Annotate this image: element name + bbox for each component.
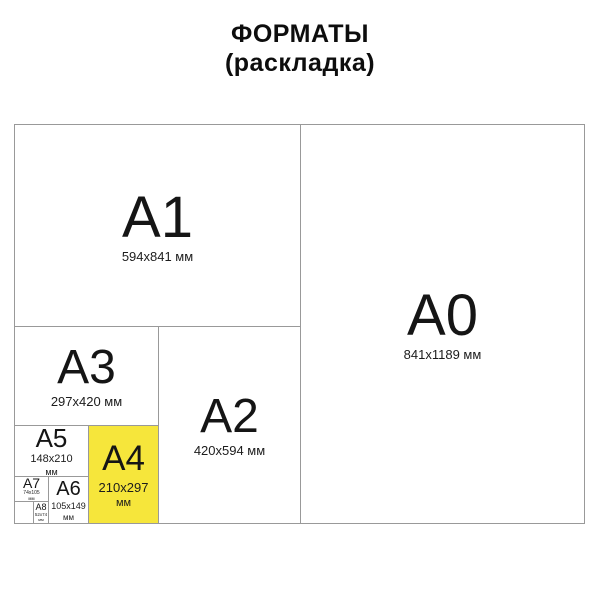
format-a8-name: A8	[35, 503, 46, 512]
format-a4: A4 210x297 мм	[88, 426, 158, 523]
format-a1: A1 594x841 мм	[15, 125, 300, 327]
format-a5: A5 148x210 мм	[15, 426, 88, 477]
formats-sheet: A0 841x1189 мм A1 594x841 мм A2 420x594 …	[14, 124, 585, 524]
format-a6: A6 105x149 мм	[48, 477, 88, 523]
format-a2: A2 420x594 мм	[158, 327, 300, 523]
format-a1-name: A1	[122, 189, 193, 247]
format-a2-size: 420x594 мм	[194, 444, 265, 457]
format-a5-name: A5	[36, 425, 68, 451]
format-a2-name: A2	[200, 393, 259, 441]
paper-formats-diagram: ФОРМАТЫ (раскладка) A0 841x1189 мм A1 59…	[0, 0, 600, 600]
format-a0: A0 841x1189 мм	[300, 125, 584, 523]
format-a6-name: A6	[56, 479, 80, 499]
format-a6-size: 105x149	[51, 502, 86, 511]
page-title: ФОРМАТЫ (раскладка)	[0, 20, 600, 78]
format-a4-name: A4	[102, 441, 145, 476]
format-a1-size: 594x841 мм	[122, 250, 193, 263]
title-line2: (раскладка)	[0, 49, 600, 78]
format-a8: A8 52x74 мм	[33, 502, 48, 523]
format-a0-name: A0	[407, 287, 478, 345]
format-a4-size: 210x297	[99, 481, 149, 494]
format-a8-unit: мм	[38, 518, 44, 522]
format-a3: A3 297x420 мм	[15, 327, 158, 426]
format-a5-unit: мм	[45, 468, 57, 477]
format-a6-unit: мм	[63, 514, 74, 522]
format-a3-name: A3	[57, 344, 116, 392]
title-line1: ФОРМАТЫ	[0, 20, 600, 49]
format-a7: A7 74x105 мм	[15, 477, 48, 502]
format-a0-size: 841x1189 мм	[404, 348, 482, 361]
format-a4-unit: мм	[116, 498, 131, 509]
format-a3-size: 297x420 мм	[51, 395, 122, 408]
format-a5-size: 148x210	[30, 454, 72, 465]
format-a7-name: A7	[23, 476, 40, 490]
